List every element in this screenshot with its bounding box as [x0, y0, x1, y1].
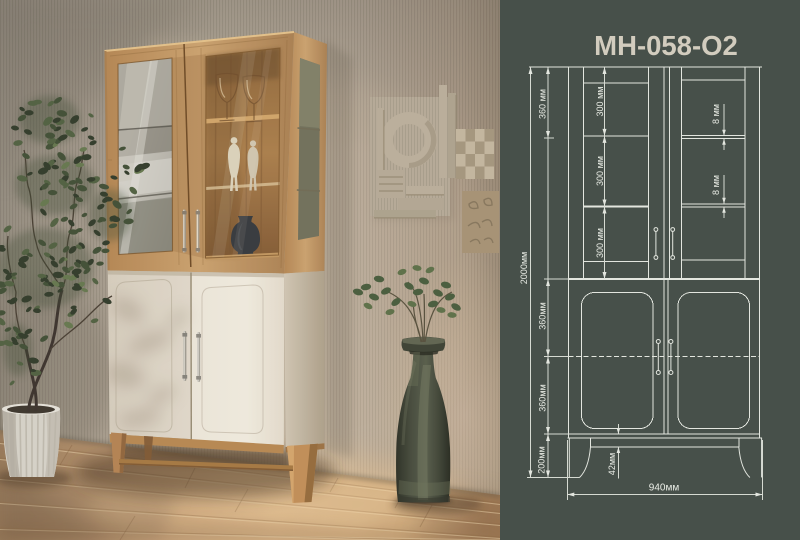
svg-text:300 мм: 300 мм: [595, 228, 605, 258]
svg-text:42мм: 42мм: [607, 453, 617, 475]
svg-text:8 мм: 8 мм: [711, 175, 721, 195]
svg-text:300 мм: 300 мм: [595, 87, 605, 117]
svg-text:360 мм: 360 мм: [538, 89, 548, 119]
svg-text:МН-058-О2: МН-058-О2: [594, 30, 738, 61]
svg-text:300 мм: 300 мм: [595, 156, 605, 186]
svg-text:8 мм: 8 мм: [711, 104, 721, 124]
svg-text:200мм: 200мм: [537, 446, 547, 473]
svg-text:360мм: 360мм: [538, 302, 548, 329]
svg-text:940мм: 940мм: [649, 483, 680, 494]
svg-text:2000мм: 2000мм: [519, 252, 529, 284]
svg-text:360мм: 360мм: [538, 384, 548, 411]
